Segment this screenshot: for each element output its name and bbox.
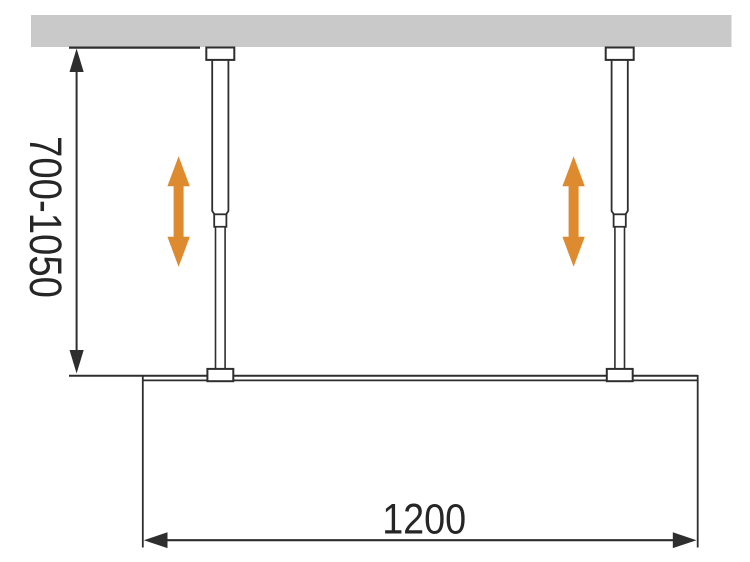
svg-text:700-1050: 700-1050 [20,136,71,298]
svg-text:1200: 1200 [382,496,466,544]
